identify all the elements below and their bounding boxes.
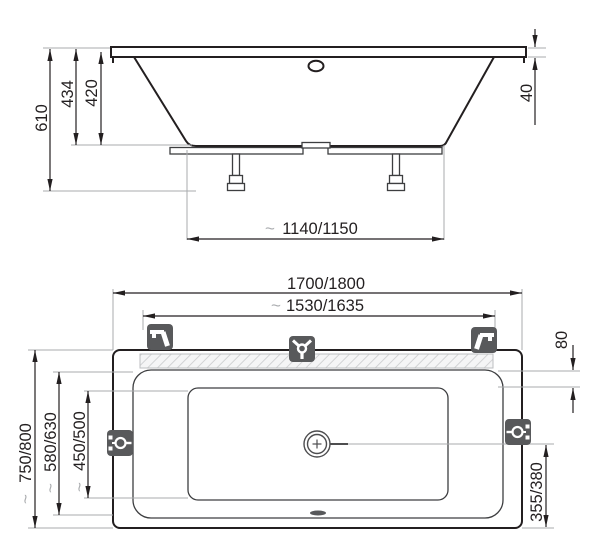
approx-symbol: ~ bbox=[70, 482, 89, 492]
support-center-plate bbox=[302, 143, 330, 149]
top-view: 1700/1800 ~ 1530/1635 80 355/380 750/800… bbox=[16, 275, 580, 528]
dim-label-length-outer: 1700/1800 bbox=[287, 275, 365, 293]
approx-symbol: ~ bbox=[41, 483, 60, 493]
water-connection-icon bbox=[505, 419, 531, 445]
dim-label-total-height: 610 bbox=[33, 104, 51, 132]
foot-right bbox=[388, 154, 405, 191]
approx-symbol: ~ bbox=[271, 296, 281, 315]
foot-left bbox=[228, 154, 245, 191]
faucet-icon bbox=[471, 327, 497, 353]
dim-label-width-bottom: 450/500 bbox=[71, 411, 89, 471]
dim-label-length-inner: 1530/1635 bbox=[286, 297, 364, 315]
headrest-strip bbox=[140, 354, 493, 368]
side-view: 610 434 420 40 ~ 1140/1150 bbox=[33, 29, 546, 240]
approx-symbol: ~ bbox=[265, 219, 275, 238]
faucet-icon bbox=[147, 324, 173, 350]
technical-drawing-canvas: 610 434 420 40 ~ 1140/1150 bbox=[0, 0, 600, 560]
dim-label-width-outer: 750/800 bbox=[17, 423, 35, 483]
dim-label-drain-offset: 355/380 bbox=[528, 462, 546, 522]
dim-label-width-inner: 580/630 bbox=[42, 412, 60, 472]
dim-label-depth-inner: 420 bbox=[83, 79, 101, 107]
dim-label-feet-span: 1140/1150 bbox=[282, 220, 358, 238]
overflow-icon bbox=[309, 61, 324, 71]
support-rail-right bbox=[328, 148, 442, 155]
dim-label-rim-thickness: 40 bbox=[518, 84, 536, 102]
tub-rim bbox=[111, 47, 526, 57]
overflow-slot bbox=[310, 511, 326, 516]
approx-symbol: ~ bbox=[16, 494, 35, 504]
dim-label-depth-outer: 434 bbox=[59, 80, 77, 108]
dim-label-apron-width: 80 bbox=[553, 331, 571, 349]
bathtub-dimension-drawing: 610 434 420 40 ~ 1140/1150 bbox=[0, 0, 600, 560]
water-connection-icon bbox=[107, 430, 133, 456]
support-rail-left bbox=[170, 148, 303, 155]
mixer-tap-icon bbox=[289, 336, 315, 362]
